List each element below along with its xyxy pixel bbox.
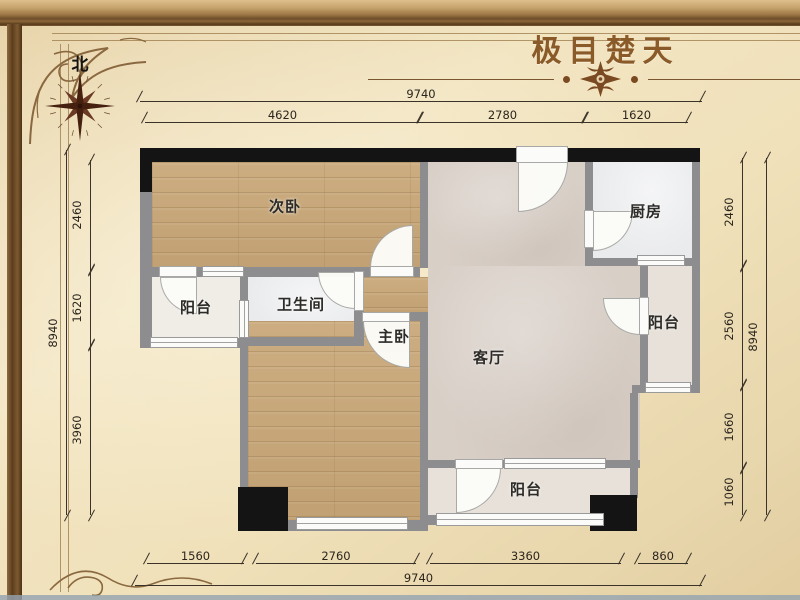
dim-label: 8940 [46, 318, 60, 347]
left-molding [7, 24, 22, 600]
dim-right-seg3: 1660 [742, 385, 743, 468]
wall-living-right-lower [630, 393, 638, 498]
room-label-master-bedroom: 主卧 [378, 326, 410, 347]
title-divider [368, 79, 554, 80]
dim-top-total: 9740 [140, 101, 702, 102]
window-master-bottom [296, 517, 408, 530]
window-balcony-left [150, 337, 238, 348]
wall-left-black [140, 148, 152, 192]
dim-label: 9740 [140, 87, 702, 101]
dim-label: 4620 [145, 108, 420, 122]
dim-label: 1620 [585, 108, 688, 122]
wall-left [140, 192, 152, 338]
divider-dot-icon [563, 76, 570, 83]
dim-label: 3360 [430, 549, 621, 563]
room-label-balcony-left: 阳台 [180, 297, 212, 318]
dim-bottom-seg4: 860 [638, 563, 688, 564]
dim-left-seg1: 2460 [90, 160, 91, 270]
column-bottom-left [238, 487, 288, 531]
title-divider [648, 79, 800, 80]
entrance-door [516, 146, 568, 163]
dim-right-seg4: 1060 [742, 468, 743, 515]
dim-label: 2780 [420, 108, 585, 122]
room-label-bedroom2: 次卧 [269, 196, 301, 217]
dim-right-seg2: 2560 [742, 266, 743, 385]
dim-label: 8940 [746, 322, 760, 351]
dim-label: 1620 [70, 293, 84, 322]
dim-top-seg3: 1620 [585, 122, 688, 123]
dim-label: 2560 [722, 311, 736, 340]
balcony-left-door [159, 266, 197, 277]
dim-label: 860 [638, 549, 688, 563]
window-kitchen-balcony [637, 255, 685, 266]
bathroom-door [354, 271, 364, 311]
dim-left-seg2: 1620 [90, 270, 91, 345]
dim-label: 2460 [722, 197, 736, 226]
room-label-kitchen: 厨房 [630, 201, 662, 222]
dim-left-seg3: 3960 [90, 345, 91, 515]
dim-top-seg1: 4620 [145, 122, 420, 123]
window-balcony-right-bottom [645, 382, 691, 393]
hallway-floor [363, 277, 428, 313]
room-label-bathroom: 卫生间 [277, 294, 325, 315]
dim-label: 1660 [722, 412, 736, 441]
dim-left-total: 8940 [66, 150, 67, 515]
floorplan-poster: 极目楚天 北 [0, 0, 800, 600]
bedroom2-door [370, 266, 414, 277]
room-living-floor [428, 266, 640, 460]
window-bedroom-balcony [202, 266, 244, 277]
dim-label: 9740 [135, 571, 702, 585]
dim-label: 3960 [70, 415, 84, 444]
bottom-edge-strip [0, 595, 800, 600]
dim-bottom-seg3: 3360 [430, 563, 621, 564]
dim-label: 1560 [147, 549, 244, 563]
dim-label: 2460 [70, 200, 84, 229]
window-living-balcony [504, 458, 606, 469]
room-label-balcony-bottom: 阳台 [510, 479, 542, 500]
wall-master-right [420, 313, 428, 531]
room-label-living-room: 客厅 [473, 347, 505, 368]
wall-top [140, 148, 700, 162]
dim-label: 1060 [722, 477, 736, 506]
window-balcony-bathroom [239, 300, 249, 338]
divider-dot-icon [631, 76, 638, 83]
wall-bathroom-bottom [240, 337, 364, 346]
compass-icon [44, 70, 116, 142]
dim-bottom-seg2: 2760 [256, 563, 416, 564]
dim-bottom-seg1: 1560 [147, 563, 244, 564]
dim-label: 2760 [256, 549, 416, 563]
room-label-balcony-right: 阳台 [648, 312, 680, 333]
window-balcony-bottom [436, 513, 604, 526]
wall-master-left [240, 346, 248, 488]
dim-bottom-total: 9740 [135, 585, 702, 586]
wall-right-outer [692, 162, 700, 390]
dim-right-seg1: 2460 [742, 158, 743, 266]
dim-top-seg2: 2780 [420, 122, 585, 123]
wall-living-left [420, 162, 428, 268]
dim-right-total: 8940 [766, 158, 767, 515]
